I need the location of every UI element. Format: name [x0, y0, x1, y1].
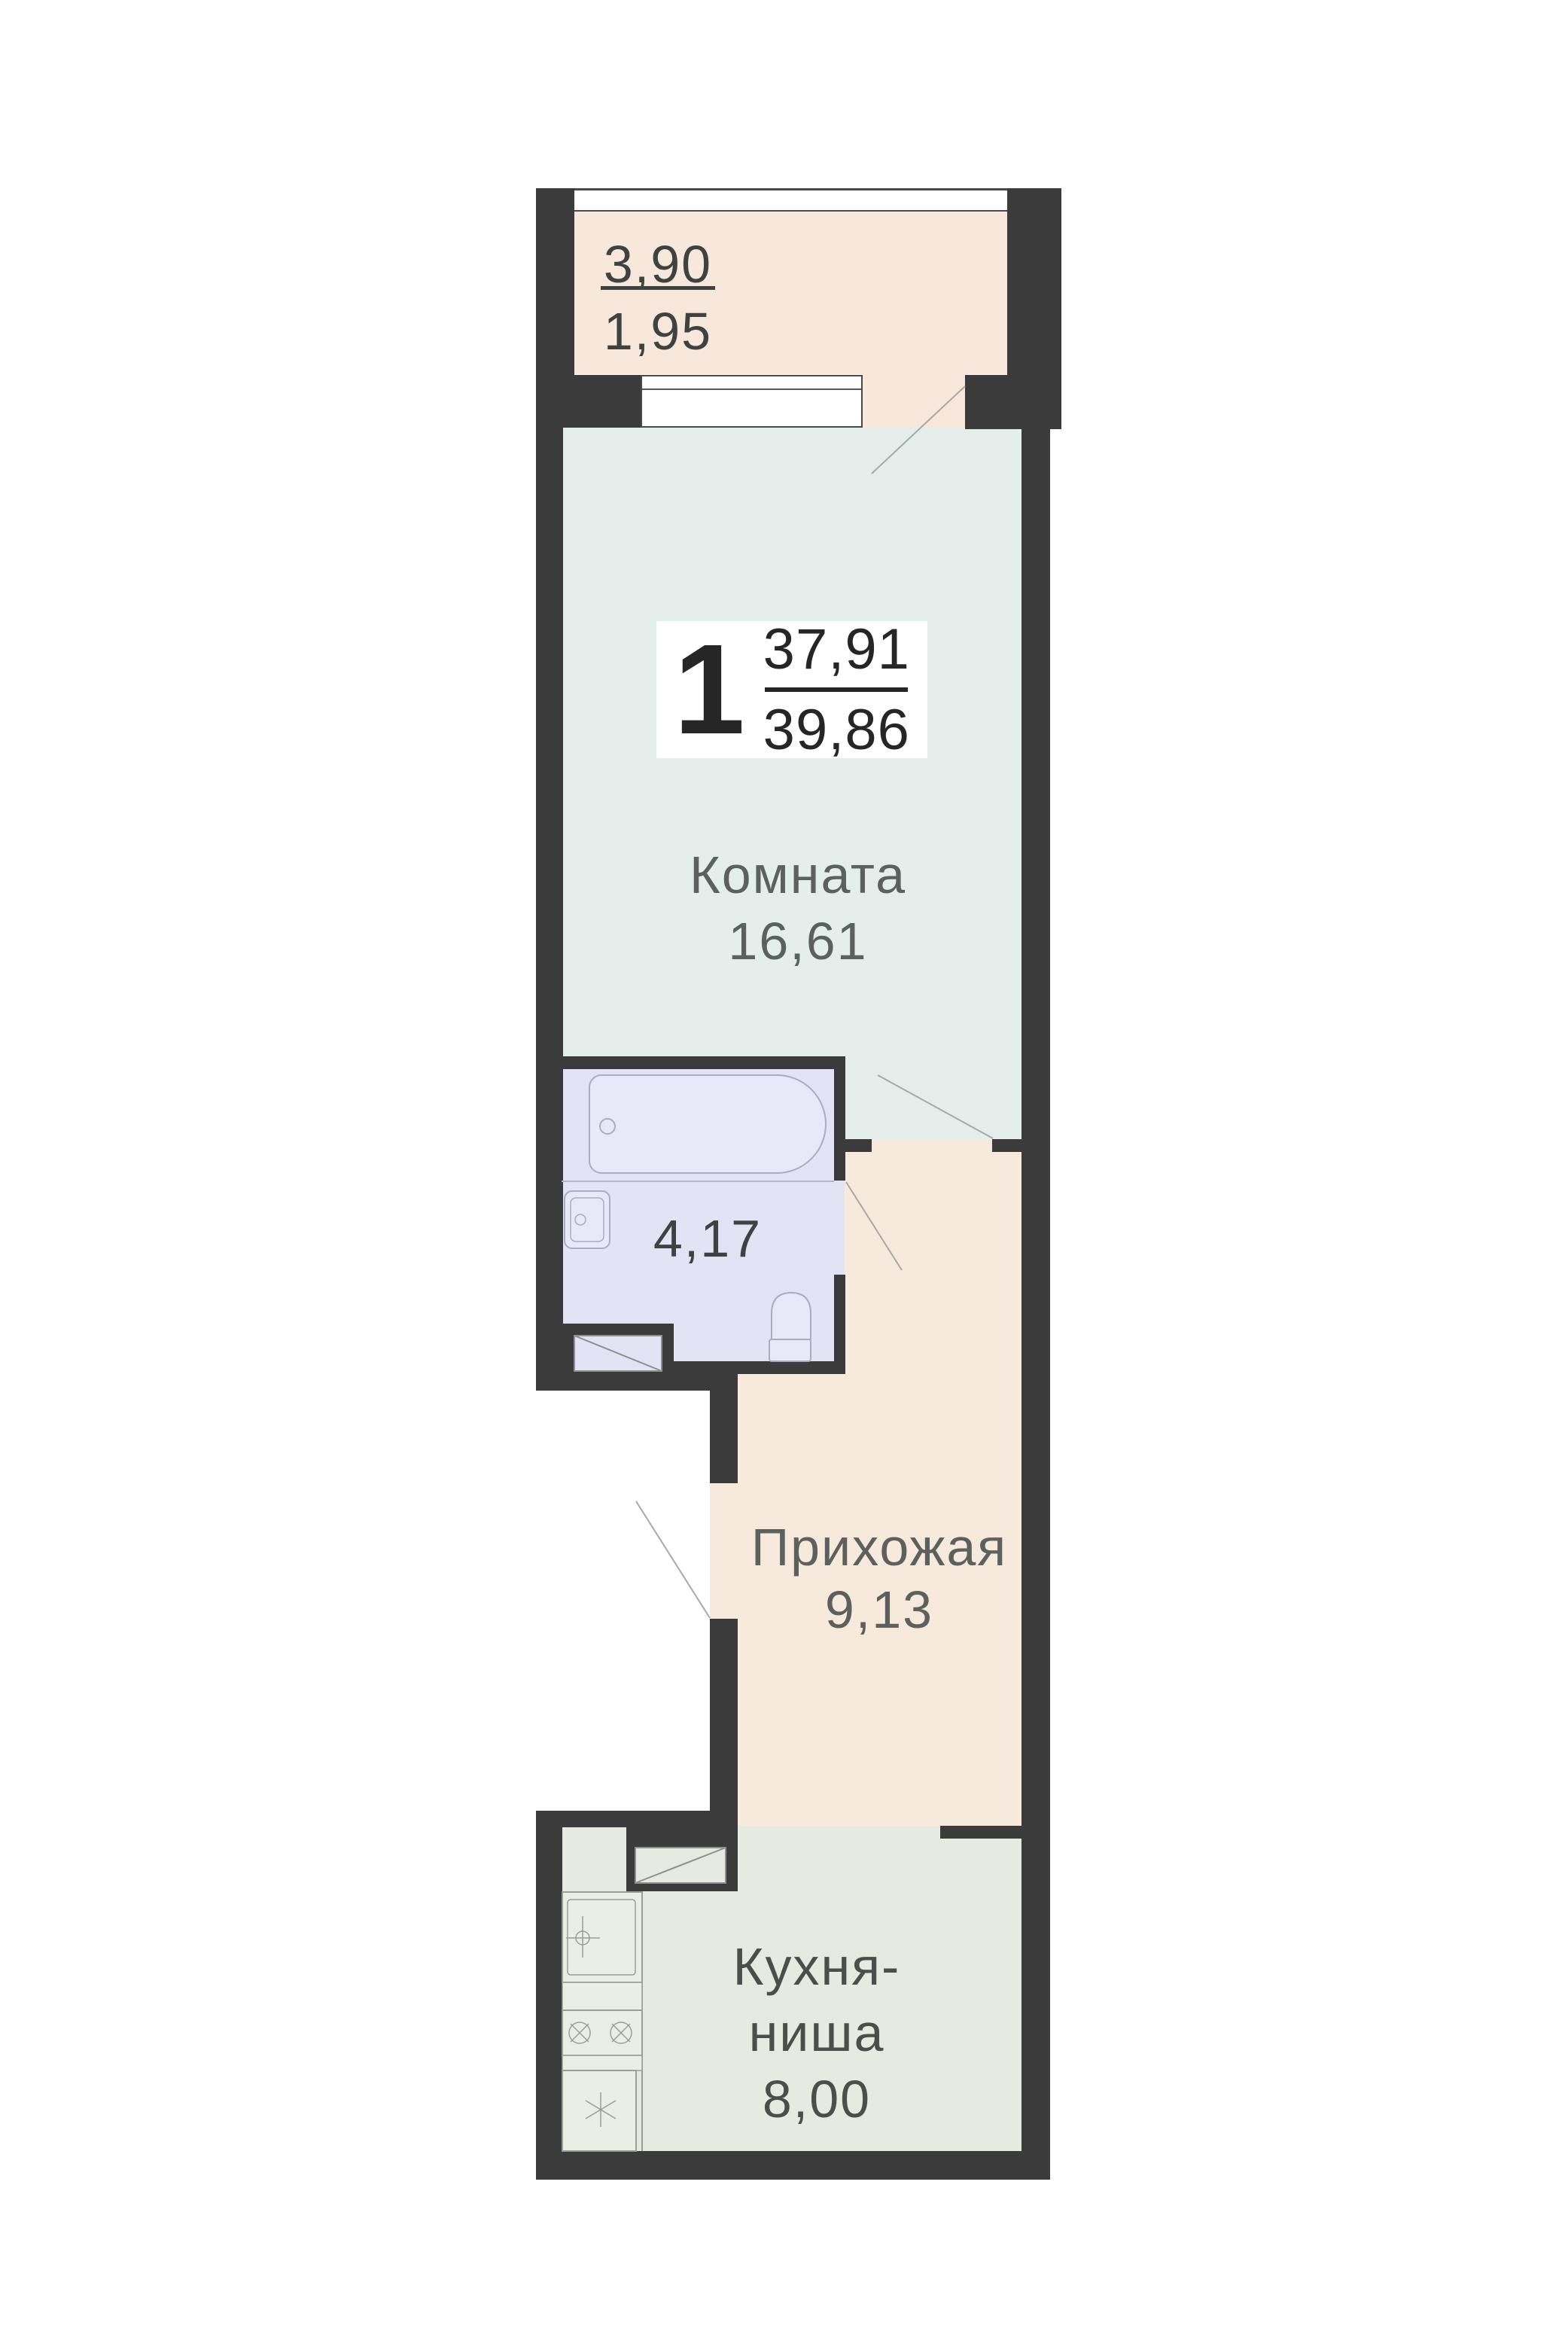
bathroom-door-swing-line — [846, 1182, 902, 1270]
kitchen-name-label-line2: ниша — [749, 2006, 885, 2059]
living-area-value: 37,91 — [763, 617, 910, 682]
balcony-fraction-line — [601, 286, 715, 290]
toilet-bowl — [772, 1293, 811, 1339]
stove — [562, 2010, 642, 2055]
apartment-summary-box: 1 37,91 39,86 — [656, 621, 927, 758]
room-door-swing-line — [878, 1075, 993, 1138]
kitchen-sink — [562, 1892, 642, 1982]
living-room-name-label: Комната — [690, 849, 906, 901]
entrance-door-swing-line — [636, 1501, 710, 1618]
shaft-diagonal-kitchen — [635, 1848, 726, 1883]
fraction-line — [765, 687, 908, 692]
kitchen-name-label-line1: Кухня- — [733, 1940, 901, 1993]
floor-plan: 3,90 1,95 1 37,91 39,86 Комната 16,61 4,… — [0, 0, 1568, 2337]
room-count: 1 — [674, 632, 745, 748]
toilet-tank — [769, 1339, 811, 1361]
hallway-area-label: 9,13 — [825, 1583, 933, 1636]
balcony-area-label: 1,95 — [604, 305, 712, 358]
kitchen-counter-gap — [562, 2055, 642, 2070]
total-area-value: 39,86 — [763, 697, 910, 763]
hallway-name-label: Прихожая — [751, 1521, 1007, 1574]
kitchen-counter — [562, 1982, 642, 2010]
kitchen-area-label: 8,00 — [763, 2073, 871, 2125]
area-fraction: 37,91 39,86 — [763, 617, 910, 763]
balcony-door-swing-line — [872, 386, 965, 474]
living-room-area-label: 16,61 — [728, 915, 867, 967]
bathroom-area-label: 4,17 — [653, 1212, 762, 1265]
shaft-diagonal-bathroom — [574, 1336, 662, 1371]
bathtub — [589, 1075, 826, 1173]
balcony-length-label: 3,90 — [604, 238, 712, 291]
